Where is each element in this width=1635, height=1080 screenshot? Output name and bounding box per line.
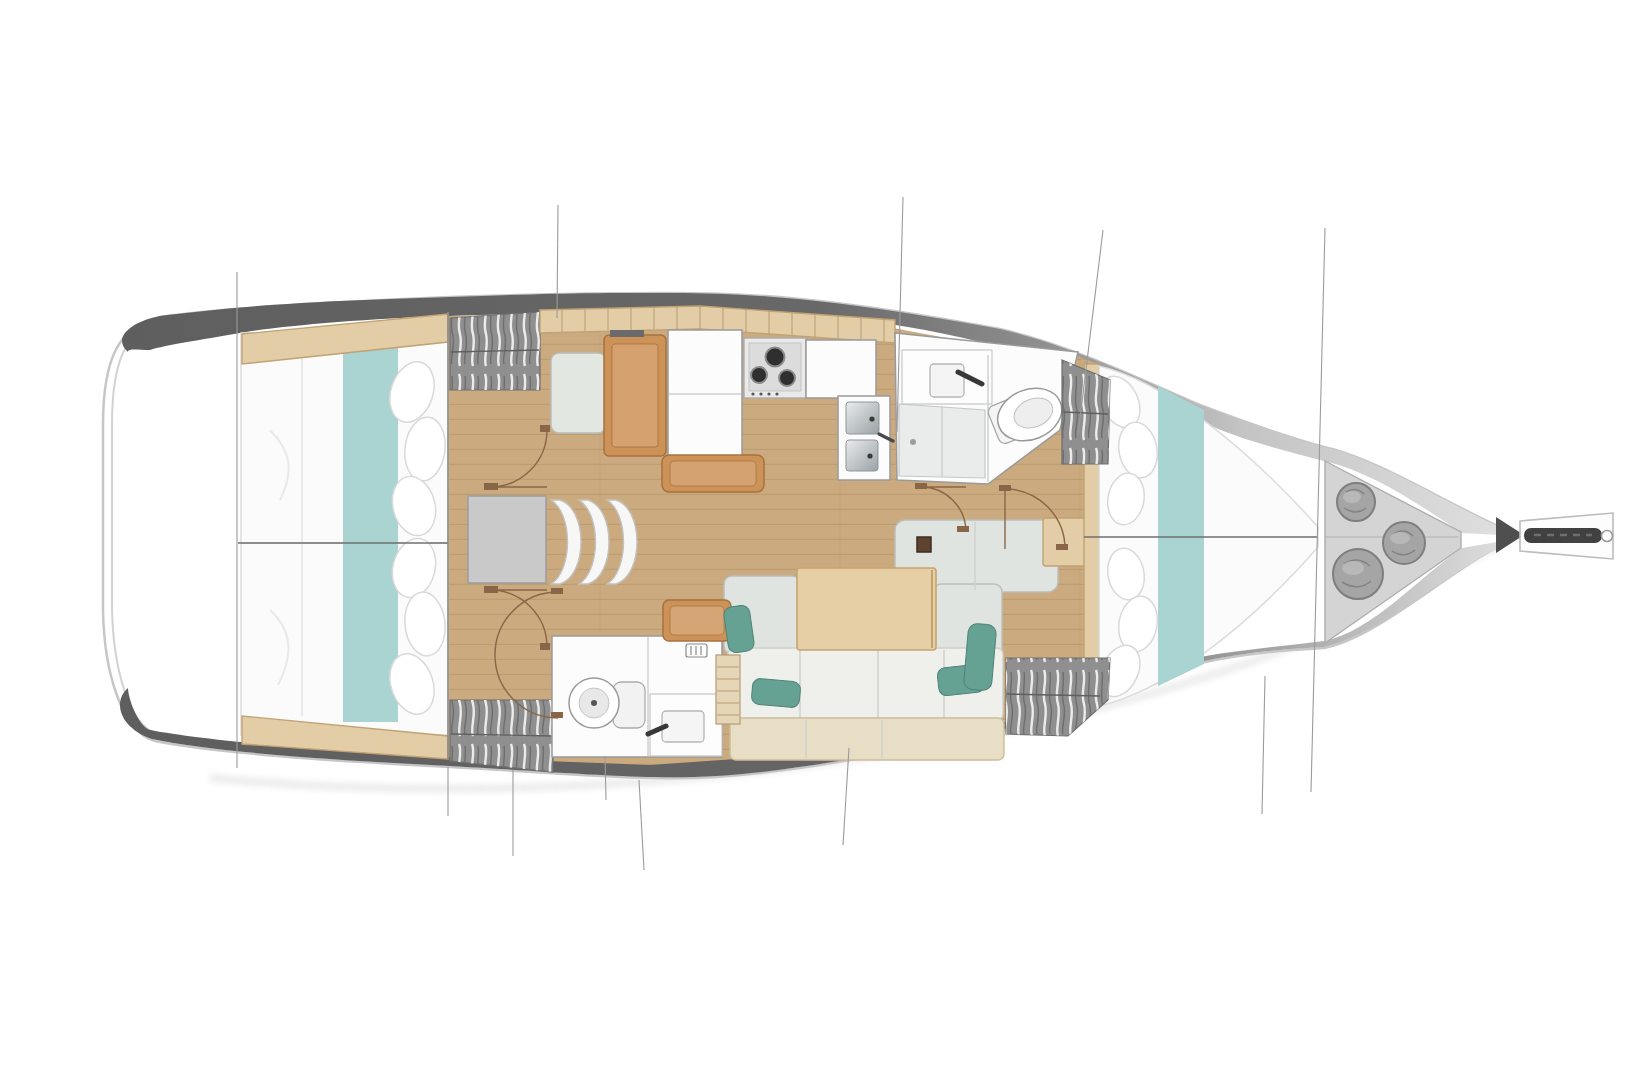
fridge [668, 330, 742, 462]
nav-instruments [610, 330, 644, 337]
mast-base [917, 537, 931, 552]
rig-line [639, 780, 644, 870]
sofa-front-bench [730, 718, 1004, 760]
rig-line [1262, 676, 1265, 814]
nav-seat [551, 353, 606, 433]
aft-head-toilet [569, 678, 645, 728]
bow-assembly [1496, 513, 1613, 559]
yacht-floor-plan [0, 0, 1635, 1080]
galley-counter [806, 340, 876, 398]
hanging-clothes [1006, 658, 1110, 736]
storage-rack [716, 655, 740, 724]
chart-table-top [612, 344, 658, 447]
companionway-landing [468, 496, 546, 583]
yacht-floor-plan-page [0, 0, 1635, 1080]
shower-drain [910, 439, 916, 445]
aft-cabins [238, 312, 449, 760]
vanity-basin [930, 364, 964, 397]
bow-fitting [1602, 531, 1613, 542]
aft-head [552, 636, 722, 757]
vberth-teal-runner [1158, 386, 1204, 686]
saloon-table [797, 568, 936, 650]
